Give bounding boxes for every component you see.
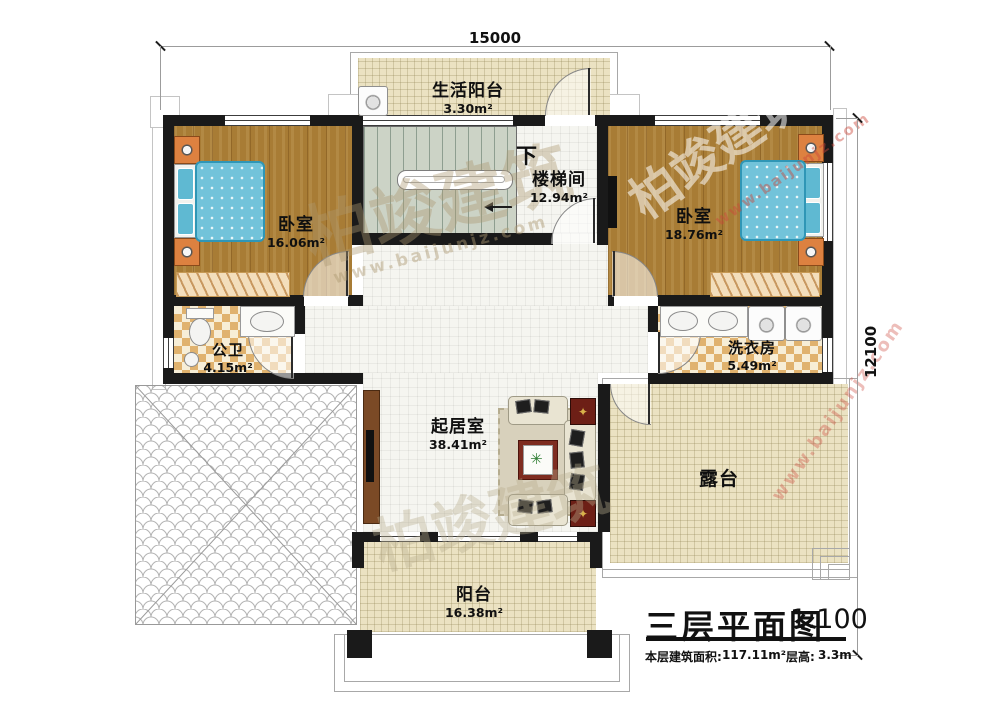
nightstand-right-2 <box>798 238 824 266</box>
extension-line-right-top <box>836 118 858 119</box>
nightstand-left-2 <box>174 238 200 266</box>
washing-machine-2 <box>785 306 822 341</box>
bed-right-pillow-2 <box>804 202 821 234</box>
stairwell-area: 12.94m² <box>530 190 588 205</box>
living-room-area: 38.41m² <box>429 437 487 452</box>
balcony-name: 阳台 <box>445 580 503 605</box>
tv-bedroom-right <box>608 176 617 228</box>
label-service-balcony: 生活阳台 3.30m² <box>432 76 504 116</box>
sofa-right-cushion-2 <box>569 451 585 468</box>
washing-machine-1 <box>748 306 785 341</box>
bed-left-pillow-1 <box>177 168 194 200</box>
wall-living-bottom-c <box>520 532 538 542</box>
door-leaf-terrace <box>648 384 650 424</box>
label-terrace: 露台 <box>699 464 739 491</box>
laundry-sink-1 <box>668 311 698 331</box>
bed-right-pillow-1 <box>804 167 821 199</box>
tiled-roof <box>135 385 357 625</box>
dimension-top-value: 15000 <box>469 29 521 47</box>
door-leaf-bathroom <box>291 333 293 378</box>
label-living-room: 起居室 38.41m² <box>429 412 487 452</box>
sofa-right-cushion-1 <box>569 429 586 447</box>
tv-living <box>366 430 374 482</box>
floor-height-value: 3.3m <box>818 648 852 662</box>
window-bedroom-left-top <box>225 115 310 126</box>
service-balcony-name: 生活阳台 <box>432 76 504 101</box>
balcony-post-bottom-right <box>587 630 612 658</box>
wall-living-bottom-b <box>420 532 438 542</box>
balcony-post-top-left <box>352 532 364 568</box>
corridor-floor <box>305 306 648 373</box>
bathroom-sink <box>250 311 284 332</box>
wall-terrace-top <box>648 373 833 384</box>
bed-right-mattress <box>740 160 806 241</box>
window-bedroom-right-top <box>655 115 760 126</box>
title-underline <box>646 637 846 641</box>
sofa-bottom-cushion-2 <box>536 499 552 514</box>
wall-stair-right <box>597 115 608 245</box>
nightstand-left-1 <box>174 136 200 164</box>
balcony-railing-inner <box>344 634 620 682</box>
plant-star-icon: ✦ <box>578 508 588 520</box>
laundry-name: 洗衣房 <box>727 337 776 358</box>
sliding-door-living-balcony <box>438 532 520 542</box>
shower-head <box>184 352 199 367</box>
bedroom-left-rug <box>176 272 290 297</box>
bed-left-mattress <box>195 161 265 242</box>
side-table-bottom: ✦ <box>570 500 596 527</box>
dimension-right-value: 12100 <box>862 326 880 378</box>
drawing-scale: 1:100 <box>790 604 868 635</box>
living-room-name: 起居室 <box>429 412 487 437</box>
balcony-area: 16.38m² <box>445 605 503 620</box>
service-balcony-area: 3.30m² <box>432 101 504 116</box>
bathroom-area: 4.15m² <box>203 360 252 375</box>
balcony-post-bottom-left <box>347 630 372 658</box>
stairwell-name: 楼梯间 <box>530 165 588 190</box>
plant-star-icon: ✦ <box>578 406 588 418</box>
label-bedroom-right: 卧室 18.76m² <box>665 202 723 242</box>
wall-living-right <box>598 384 610 532</box>
bedroom-right-name: 卧室 <box>665 202 723 227</box>
label-laundry: 洗衣房 5.49m² <box>727 337 776 373</box>
sofa-bottom-cushion-1 <box>517 499 533 514</box>
floor-area-label: 本层建筑面积: <box>645 648 722 665</box>
stair-direction-arrow-line <box>492 206 512 208</box>
dimension-line-right <box>857 118 858 655</box>
wall-bath-bottom <box>163 373 363 384</box>
terrace-name: 露台 <box>699 464 739 491</box>
floor-height-label: 层高: <box>786 648 815 665</box>
sofa-top-cushion-2 <box>533 399 549 413</box>
extension-line-top-left <box>160 46 161 110</box>
bathroom-name: 公卫 <box>203 339 252 360</box>
service-balcony-door-gap <box>545 115 595 126</box>
wall-laundry-left <box>648 306 658 332</box>
bed-left-pillow-2 <box>177 203 194 235</box>
sofa-right-cushion-3 <box>569 473 585 491</box>
window-living-bottom-left <box>380 532 420 542</box>
label-balcony: 阳台 16.38m² <box>445 580 503 620</box>
label-stairwell: 楼梯间 12.94m² <box>530 165 588 205</box>
label-bedroom-left: 卧室 16.06m² <box>267 210 325 250</box>
bedroom-right-rug <box>710 272 820 297</box>
door-leaf-laundry <box>658 332 660 373</box>
bedroom-left-area: 16.06m² <box>267 235 325 250</box>
bedroom-right-area: 18.76m² <box>665 227 723 242</box>
floor-area-value: 117.11m² <box>722 648 786 662</box>
floor-plan-canvas: ✳ ✦ ✦ 柏竣建筑 www.baijunjz.com 柏竣建筑 www.bai… <box>0 0 1000 706</box>
wall-stair-left <box>352 115 363 245</box>
roof-overhang-right <box>833 108 847 390</box>
coffee-table-plant-icon: ✳ <box>530 452 543 467</box>
bedroom-left-name: 卧室 <box>267 210 325 235</box>
nightstand-right-1 <box>798 134 824 162</box>
window-bathroom-left <box>163 338 174 368</box>
door-leaf-bedroom-left <box>346 251 348 296</box>
washing-machine-balcony <box>358 86 388 116</box>
label-bathroom: 公卫 4.15m² <box>203 339 252 375</box>
laundry-sink-2 <box>708 311 738 331</box>
stair-handrail-inner <box>403 176 505 183</box>
window-living-bottom-right <box>538 532 577 542</box>
laundry-area: 5.49m² <box>727 358 776 373</box>
extension-line-top-right <box>830 46 831 110</box>
window-stair-top <box>363 115 513 126</box>
terrace-step-3 <box>828 564 850 580</box>
wall-bed-left-bottom-b <box>348 295 363 306</box>
wall-stair-bottom <box>363 233 553 245</box>
balcony-post-top-right <box>590 532 602 568</box>
door-leaf-bedroom-right <box>613 251 615 296</box>
window-laundry-right <box>822 338 833 372</box>
side-table-top: ✦ <box>570 398 596 425</box>
sofa-top-cushion-1 <box>515 399 532 414</box>
door-leaf-stairwell <box>593 198 595 243</box>
door-leaf-service-balcony <box>588 68 590 115</box>
